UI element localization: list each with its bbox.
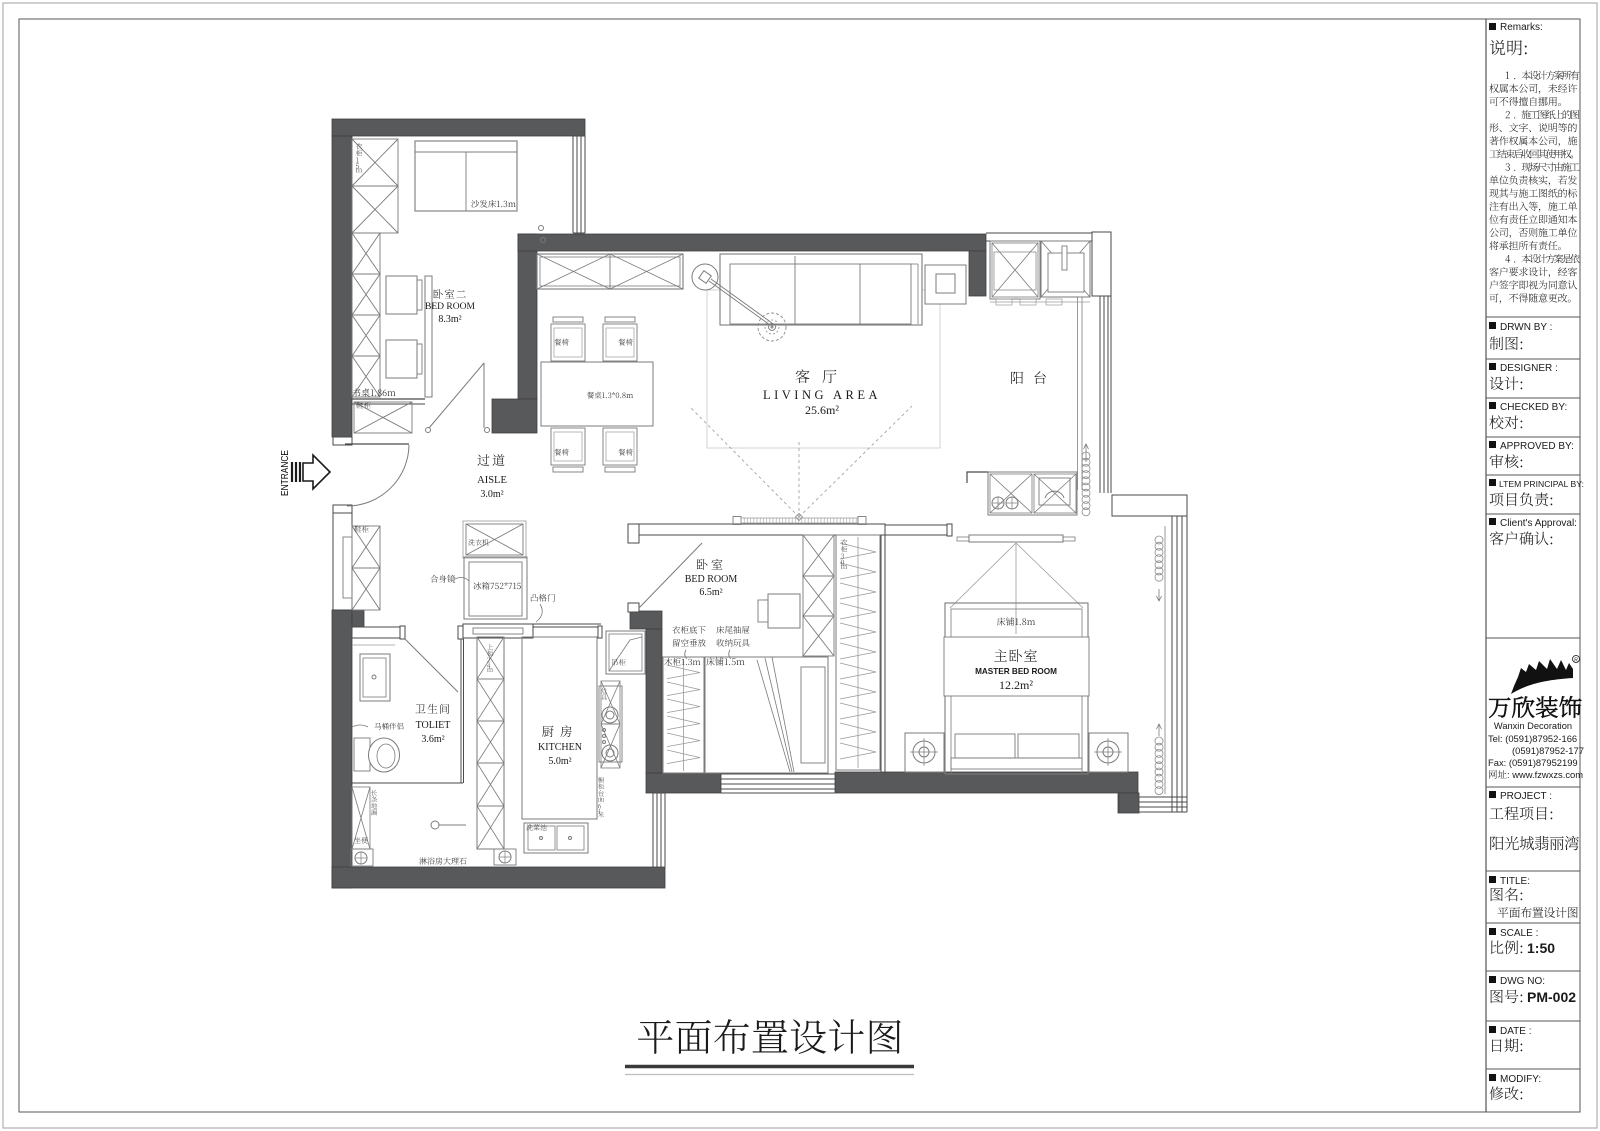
- svg-text:LTEM PRINCIPAL BY:: LTEM PRINCIPAL BY:: [1499, 479, 1584, 489]
- svg-text:CHECKED BY:: CHECKED BY:: [1500, 402, 1567, 413]
- svg-text:Wanxin Decoration: Wanxin Decoration: [1494, 721, 1572, 731]
- svg-text:: www.fzwxzs.com: : www.fzwxzs.com: [1507, 769, 1583, 780]
- svg-text:Tel: (0591)87952-166: Tel: (0591)87952-166: [1488, 733, 1577, 744]
- svg-text:PROJECT :: PROJECT :: [1500, 791, 1552, 802]
- svg-text:DESIGNER :: DESIGNER :: [1500, 363, 1558, 374]
- svg-text:DATE :: DATE :: [1500, 1026, 1531, 1037]
- svg-text:LIVING AREA: LIVING AREA: [763, 388, 881, 402]
- svg-text:BED ROOM: BED ROOM: [685, 574, 738, 585]
- svg-text:KITCHEN: KITCHEN: [538, 742, 582, 753]
- svg-text:8.3m²: 8.3m²: [438, 314, 461, 325]
- svg-text:TOLIET: TOLIET: [416, 720, 451, 731]
- svg-text:25.6m²: 25.6m²: [805, 403, 839, 417]
- svg-text:MODIFY:: MODIFY:: [1500, 1074, 1541, 1085]
- svg-text:Fax: (0591)87952199: Fax: (0591)87952199: [1488, 757, 1578, 768]
- svg-text:12.2m²: 12.2m²: [999, 678, 1033, 692]
- svg-text:5.0m²: 5.0m²: [548, 756, 571, 767]
- svg-text:PM-002: PM-002: [1527, 989, 1576, 1005]
- svg-text:1:50: 1:50: [1527, 940, 1555, 956]
- svg-text:ENTRANCE: ENTRANCE: [279, 450, 291, 496]
- svg-text:(0591)87952-177: (0591)87952-177: [1512, 745, 1584, 756]
- svg-text:APPROVED BY:: APPROVED BY:: [1500, 441, 1574, 452]
- svg-text:TITLE:: TITLE:: [1500, 876, 1530, 887]
- svg-text:3.0m²: 3.0m²: [480, 489, 503, 500]
- svg-text:R: R: [1574, 658, 1578, 664]
- svg-text:Remarks:: Remarks:: [1500, 22, 1543, 33]
- svg-text:MASTER BED ROOM: MASTER BED ROOM: [975, 667, 1057, 676]
- svg-text:Client's Approval:: Client's Approval:: [1500, 518, 1577, 529]
- svg-text:3.6m²: 3.6m²: [421, 734, 444, 745]
- svg-text:AISLE: AISLE: [477, 475, 507, 486]
- svg-text:SCALE :: SCALE :: [1500, 928, 1538, 939]
- svg-text:BED ROOM: BED ROOM: [425, 302, 475, 312]
- svg-text:DWG NO:: DWG NO:: [1500, 976, 1545, 987]
- svg-text:6.5m²: 6.5m²: [699, 587, 722, 598]
- svg-text:DRWN BY :: DRWN BY :: [1500, 322, 1552, 333]
